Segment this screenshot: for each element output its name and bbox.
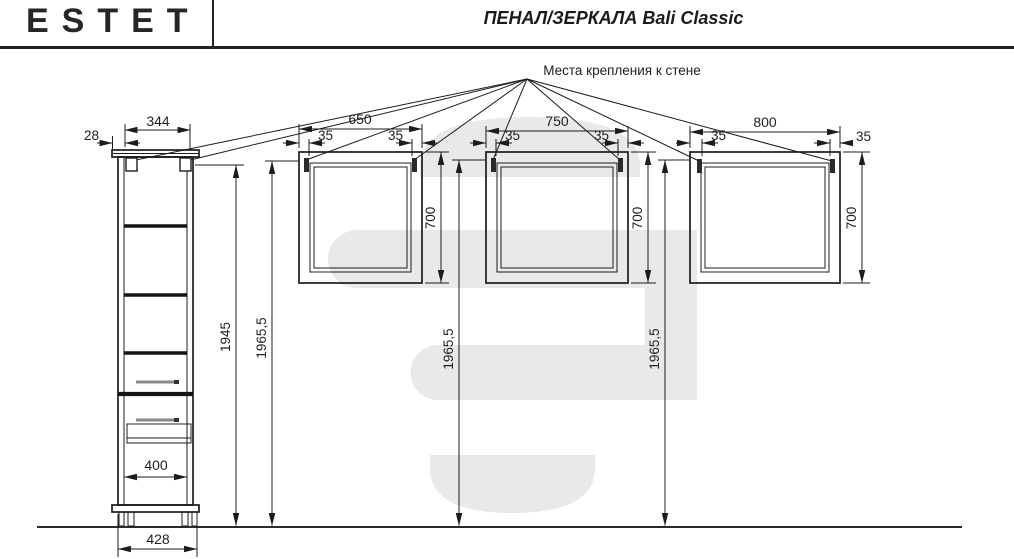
dim-label-1965-1: 1965,5 [254, 317, 269, 358]
dim-label-650-35L: 35 [318, 128, 333, 143]
technical-drawing: Места крепления к стене [0, 0, 1014, 559]
mirror-650-mount-right [412, 158, 417, 172]
cabinet-mount-bracket-left [126, 158, 137, 171]
mirror-800-mount-left [697, 159, 702, 173]
cabinet-body [118, 157, 193, 505]
cabinet-base-plate [112, 505, 199, 512]
dim-label-28: 28 [84, 128, 99, 143]
dim-label-1945: 1945 [218, 322, 233, 352]
mirror-800-mount-right [830, 159, 835, 173]
mirror-650-mount-left [304, 158, 309, 172]
cabinet-drawer-front [127, 424, 191, 443]
dim-label-750-700: 700 [630, 207, 645, 230]
cabinet-leg [182, 512, 188, 526]
wall-mount-label: Места крепления к стене [543, 63, 701, 78]
dim-label-750-35L: 35 [505, 128, 520, 143]
dim-label-650-35R: 35 [388, 128, 403, 143]
mirror-750-mount-left [491, 158, 496, 172]
dim-label-650-700: 700 [423, 207, 438, 230]
mirror-750-mount-right [618, 158, 623, 172]
dim-label-428: 428 [146, 531, 170, 547]
dim-label-800-35R: 35 [856, 129, 871, 144]
dim-label-650: 650 [348, 111, 372, 127]
dim-label-800-35L: 35 [711, 128, 726, 143]
cabinet-dimensions: 344 28 1945 1965,5 400 428 [84, 113, 298, 557]
dim-label-344: 344 [146, 113, 170, 129]
dim-label-800: 800 [753, 114, 777, 130]
cabinet-mount-bracket-right [180, 158, 191, 171]
dim-label-1965-2: 1965,5 [441, 328, 456, 369]
dim-label-750: 750 [545, 113, 569, 129]
dim-label-1965-3: 1965,5 [647, 328, 662, 369]
mirror-800-frame [690, 152, 840, 283]
dim-label-800-700: 700 [844, 207, 859, 230]
dim-label-400: 400 [144, 457, 168, 473]
page: ESTET ПЕНАЛ/ЗЕРКАЛА Bali Classic [0, 0, 1014, 559]
cabinet-leg [192, 512, 197, 526]
dim-label-750-35R: 35 [594, 128, 609, 143]
estet-watermark [328, 117, 697, 513]
cabinet-leg [119, 512, 124, 526]
cabinet-leg [128, 512, 134, 526]
